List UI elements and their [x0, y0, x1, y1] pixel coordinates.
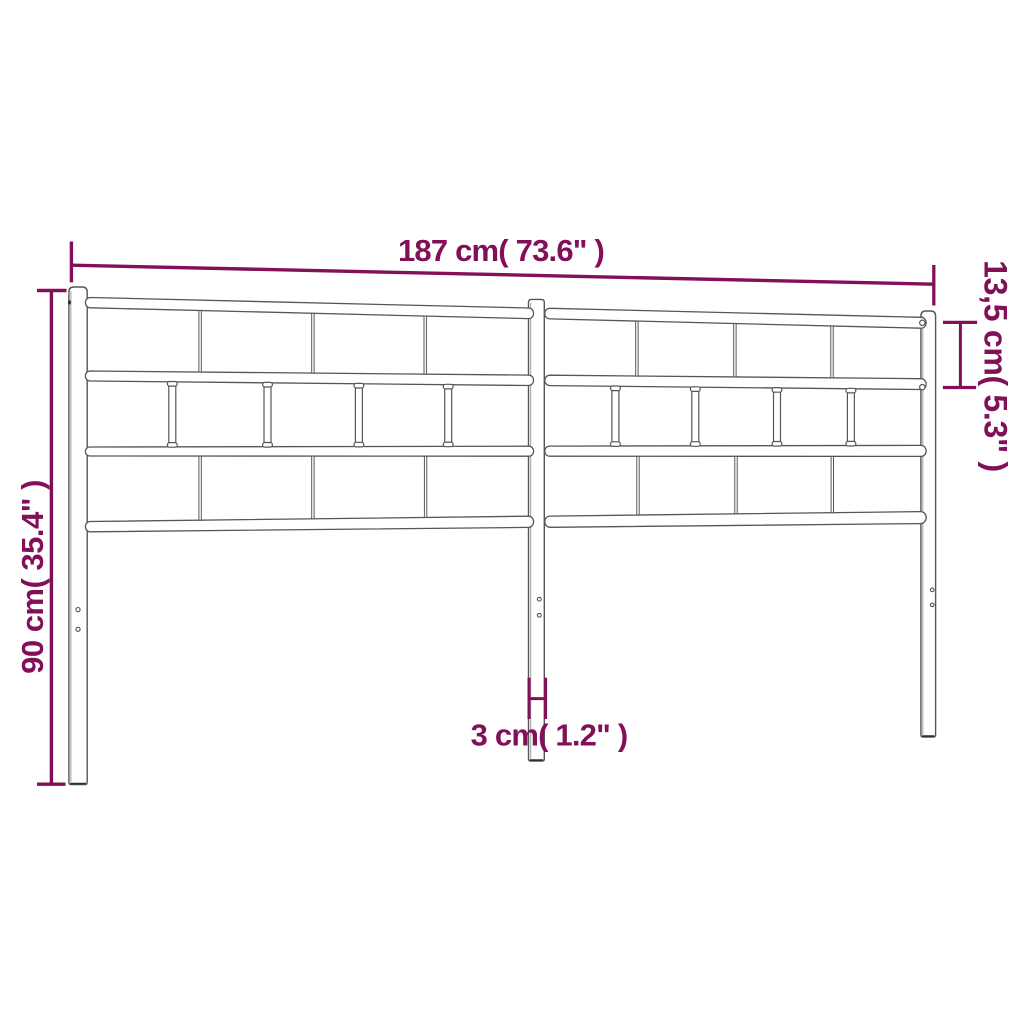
svg-text:3 cm( 1.2" ): 3 cm( 1.2" )	[471, 718, 628, 753]
svg-text:13,5 cm( 5.3" ): 13,5 cm( 5.3" )	[977, 260, 1013, 472]
svg-text:187 cm( 73.6" ): 187 cm( 73.6" )	[398, 233, 604, 268]
svg-text:90 cm( 35.4" ): 90 cm( 35.4" )	[15, 480, 50, 674]
